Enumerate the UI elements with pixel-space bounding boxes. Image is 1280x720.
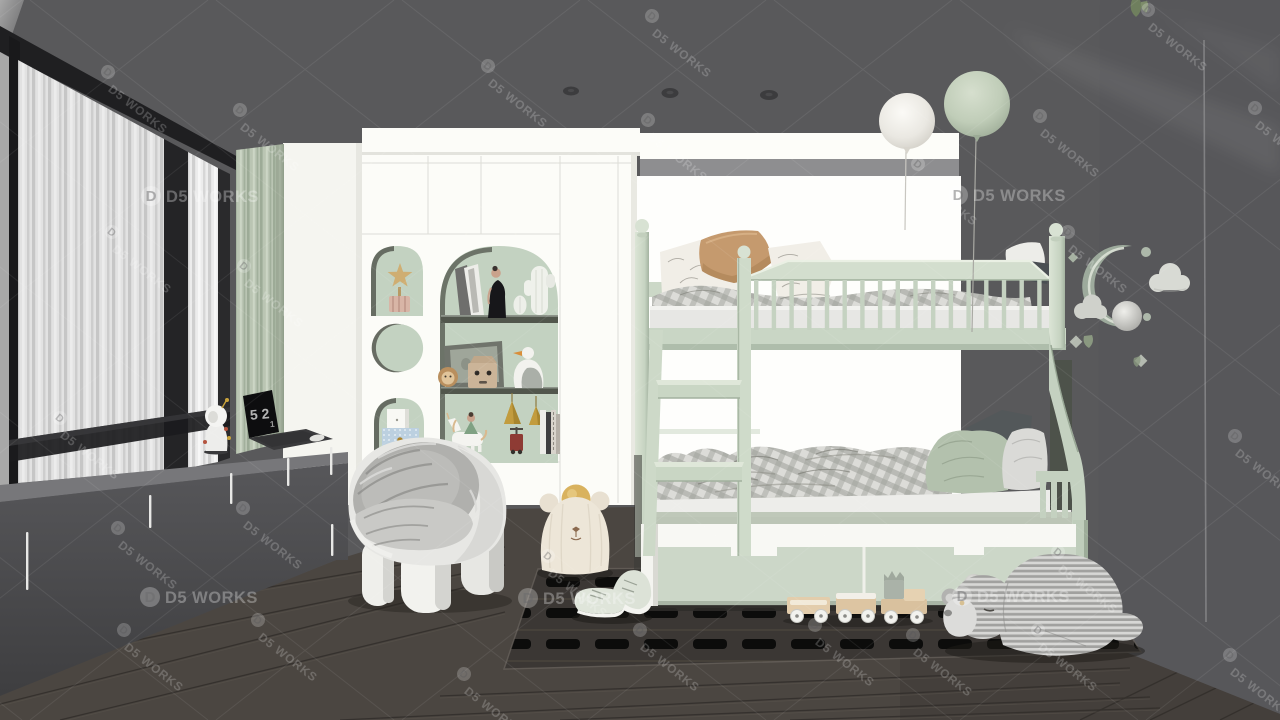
svg-text:D: D (145, 589, 156, 606)
svg-text:D: D (523, 590, 534, 607)
svg-text:D5 WORKS: D5 WORKS (973, 187, 1066, 205)
svg-text:5 2: 5 2 (249, 405, 270, 423)
svg-text:D: D (146, 188, 157, 205)
svg-text:D5 WORKS: D5 WORKS (165, 589, 258, 607)
svg-text:D5 WORKS: D5 WORKS (166, 188, 259, 206)
svg-text:D: D (957, 588, 968, 605)
svg-text:D5 WORKS: D5 WORKS (977, 588, 1070, 606)
